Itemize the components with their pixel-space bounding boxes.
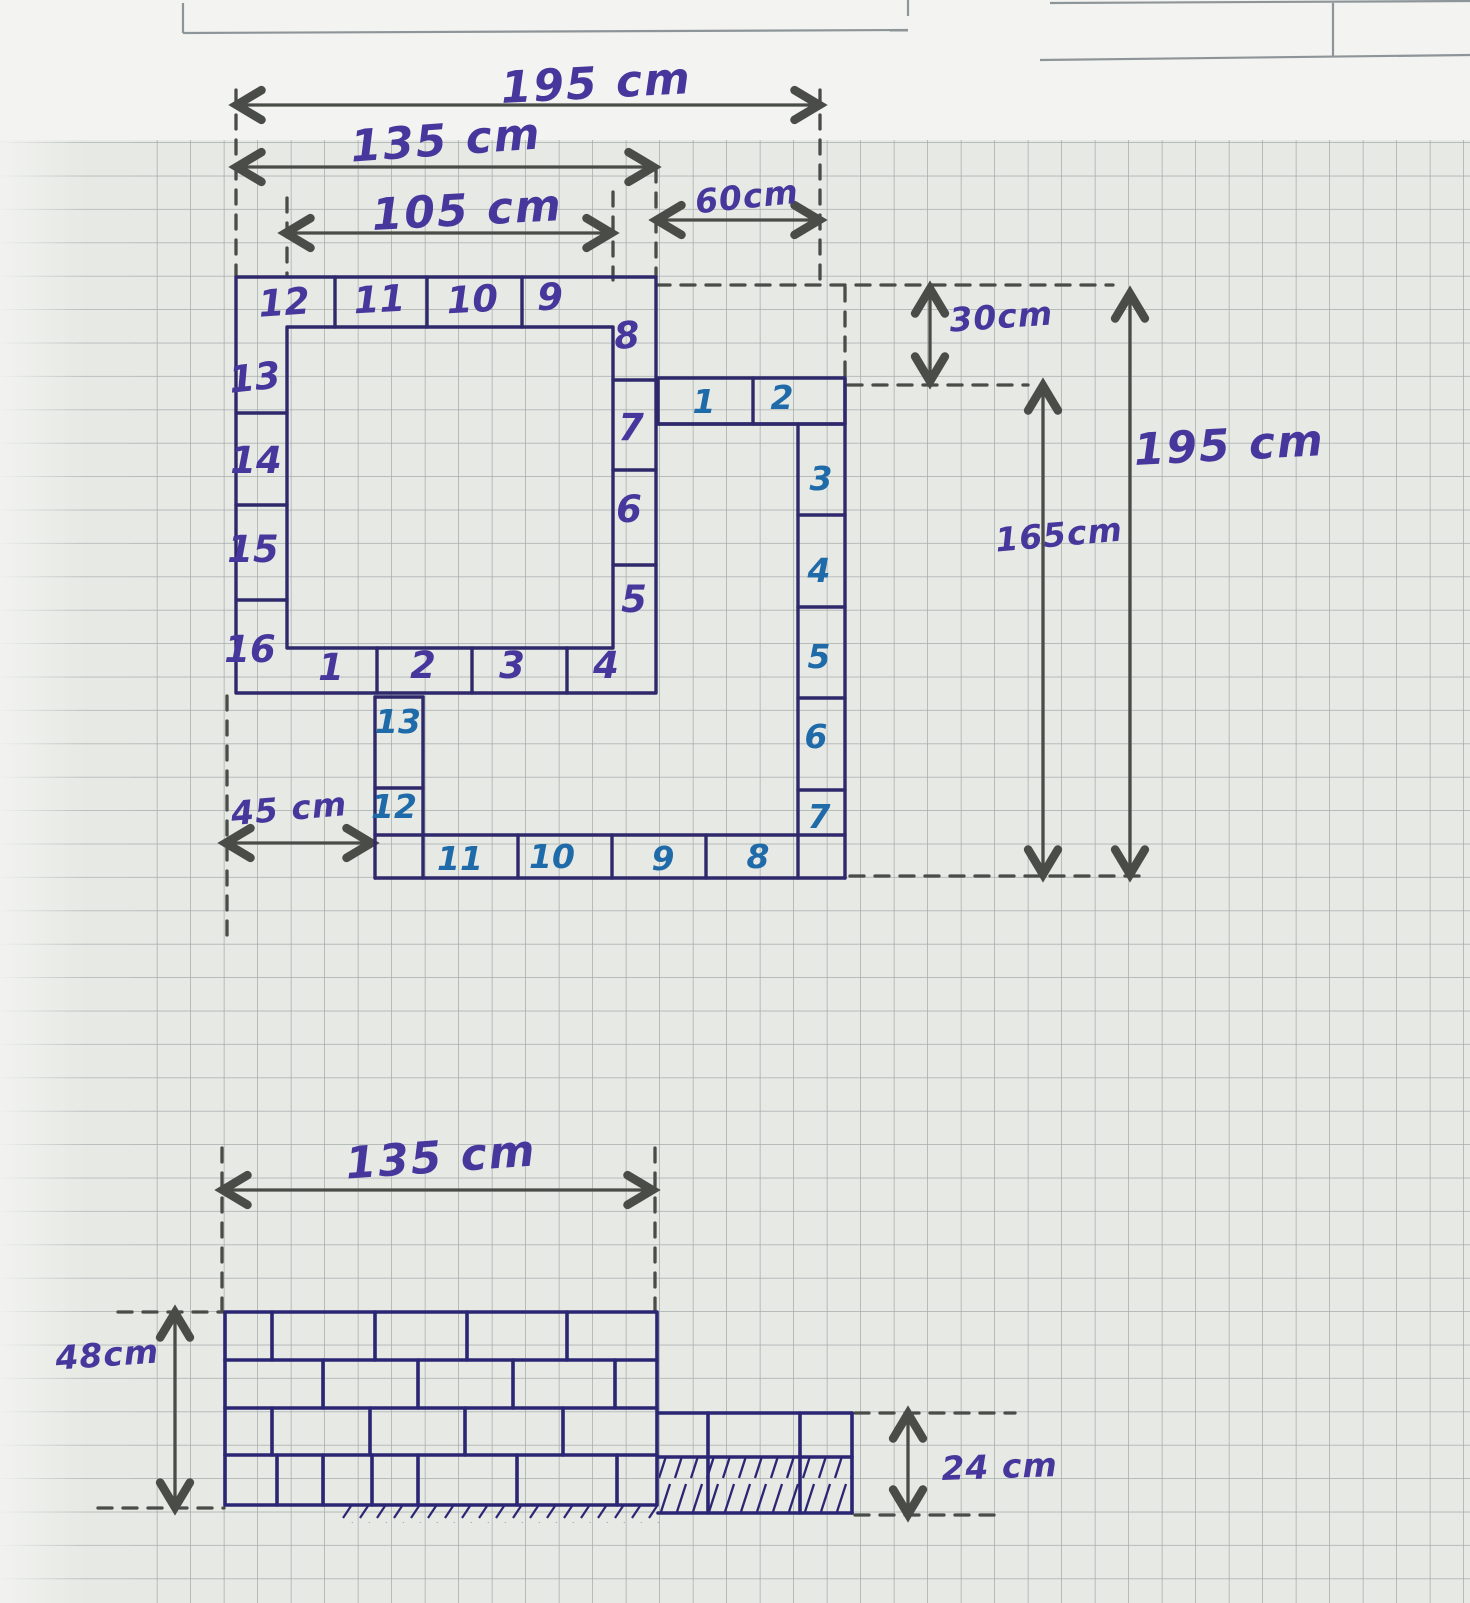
dim-label-total-width: 195 cm [499,53,693,114]
dim-label-nook-height: 30cm [948,293,1054,339]
page-curve-shading [0,140,85,1603]
strip-tile-label: 3 [810,459,833,498]
hatched-cut-area [659,1458,851,1512]
border-tile-label: 14 [230,439,282,482]
strip-tile-label: 11 [437,839,483,878]
squared-grid-area [132,140,1470,1603]
hatch-ticks-under-panel [340,1505,665,1523]
border-tile-label: 10 [446,277,500,323]
graph-paper-sketch-photo: 12 11 10 9 8 7 6 5 1 2 3 4 13 14 15 16 1… [0,0,1470,1603]
border-tile-label: 2 [410,644,436,687]
paper-background [0,0,1470,1603]
strip-tile-label: 12 [371,787,417,826]
strip-tile-label: 10 [529,837,575,876]
dim-label-height: 48cm [53,1331,160,1377]
strip-tile-label: 9 [652,839,675,878]
strip-tile-label: 2 [771,378,794,417]
border-tile-label: 1 [318,646,344,689]
strip-tile-label: 7 [808,797,831,836]
border-tile-label: 3 [499,644,525,687]
border-tile-label: 15 [227,528,279,571]
strip-tile-label: 1 [693,382,716,421]
dim-label-inner-width: 105 cm [370,180,564,241]
strip-tile-label: 8 [747,837,770,876]
border-tile-label: 16 [224,628,276,671]
border-tile-label: 12 [257,279,311,325]
border-tile-label: 11 [353,277,407,323]
border-tile-label: 9 [537,276,563,319]
strip-tile-label: 4 [807,551,831,590]
dim-label-total-height: 195 cm [1132,415,1326,476]
border-tile-label: 6 [616,488,642,531]
strip-tile-label: 5 [808,637,831,676]
border-tile-label: 4 [592,644,619,687]
border-tile-label: 7 [618,406,644,449]
border-tile-label: 8 [612,313,641,358]
border-tile-label: 5 [621,578,647,621]
top-sheet-edge [0,0,1470,140]
dim-label-strip-height: 24 cm [941,1445,1059,1488]
border-tile-label: 13 [227,353,283,401]
strip-tile-label: 6 [805,717,828,756]
strip-tile-label: 13 [375,702,421,741]
tiling-plan-drawing: 12 11 10 9 8 7 6 5 1 2 3 4 13 14 15 16 1… [0,0,1470,1603]
